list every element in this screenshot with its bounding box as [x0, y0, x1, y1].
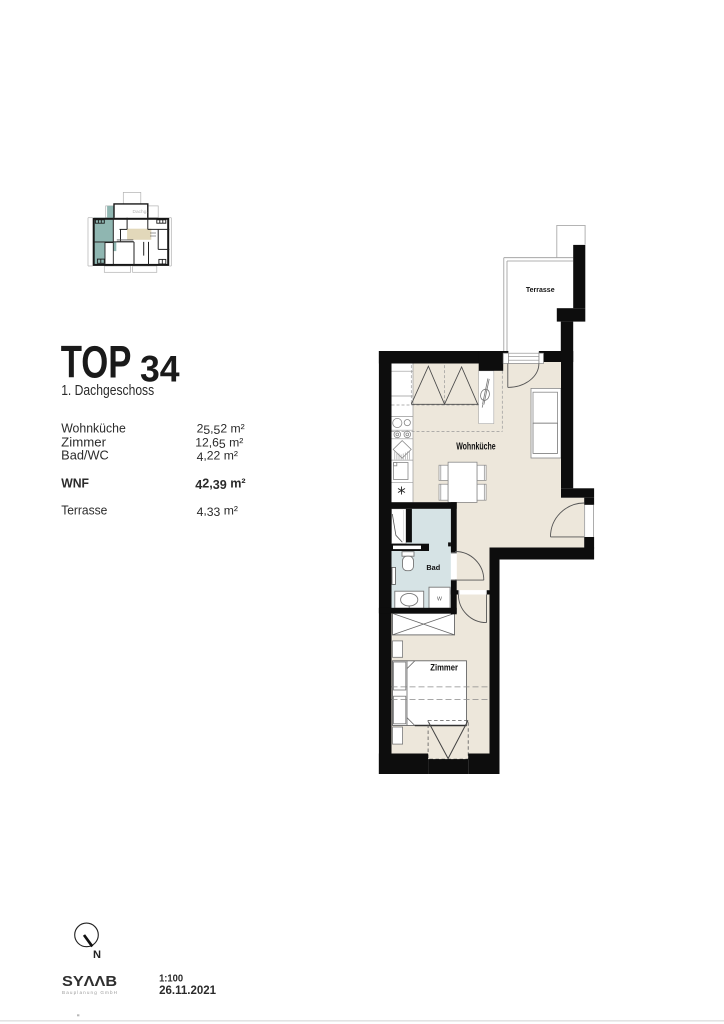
- svg-text:Dachg.: Dachg.: [133, 209, 148, 215]
- svg-text:Bad: Bad: [426, 563, 440, 572]
- svg-text:SYΛΛB: SYΛΛB: [62, 973, 117, 990]
- svg-text:25,52 m²: 25,52 m²: [197, 422, 245, 437]
- svg-text:Terrasse: Terrasse: [61, 504, 107, 518]
- svg-text:1:100: 1:100: [159, 972, 183, 984]
- svg-text:N: N: [93, 949, 101, 961]
- svg-text:1. Dachgeschoss: 1. Dachgeschoss: [61, 383, 154, 399]
- svg-text:WNF: WNF: [61, 477, 89, 491]
- svg-text:Bad/WC: Bad/WC: [61, 448, 109, 462]
- svg-text:4,33 m²: 4,33 m²: [197, 504, 238, 519]
- svg-text:TOP: TOP: [61, 337, 132, 388]
- svg-text:W: W: [437, 596, 442, 602]
- svg-text:26.11.2021: 26.11.2021: [159, 984, 217, 997]
- svg-text:Wohnküche: Wohnküche: [456, 442, 496, 453]
- svg-text:Zimmer: Zimmer: [430, 662, 458, 673]
- svg-text:Terrasse: Terrasse: [526, 285, 555, 294]
- svg-text:42,39 m²: 42,39 m²: [195, 477, 245, 492]
- svg-text:Wohnküche: Wohnküche: [61, 422, 126, 436]
- svg-text:4,22 m²: 4,22 m²: [197, 448, 238, 463]
